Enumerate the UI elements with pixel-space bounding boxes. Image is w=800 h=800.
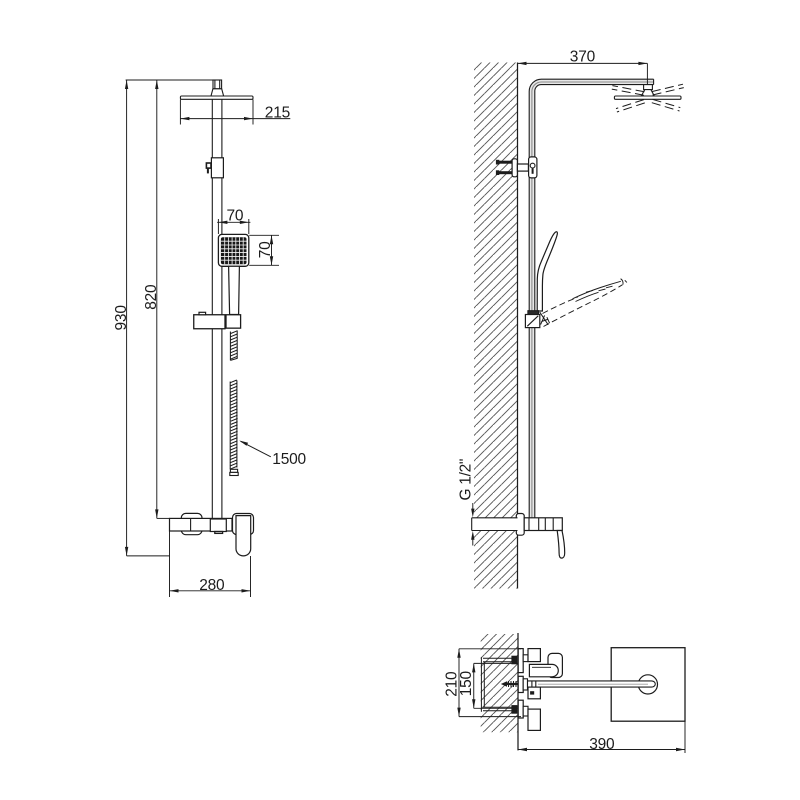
- svg-text:G 1/2": G 1/2": [458, 459, 475, 501]
- svg-text:280: 280: [199, 577, 225, 594]
- svg-text:370: 370: [570, 49, 596, 66]
- svg-text:70: 70: [257, 241, 274, 258]
- svg-text:390: 390: [589, 736, 615, 753]
- svg-text:215: 215: [265, 105, 290, 122]
- svg-text:150: 150: [458, 670, 475, 696]
- svg-text:1500: 1500: [272, 451, 306, 468]
- svg-text:70: 70: [227, 207, 244, 224]
- svg-text:820: 820: [143, 284, 160, 310]
- svg-text:930: 930: [113, 305, 130, 331]
